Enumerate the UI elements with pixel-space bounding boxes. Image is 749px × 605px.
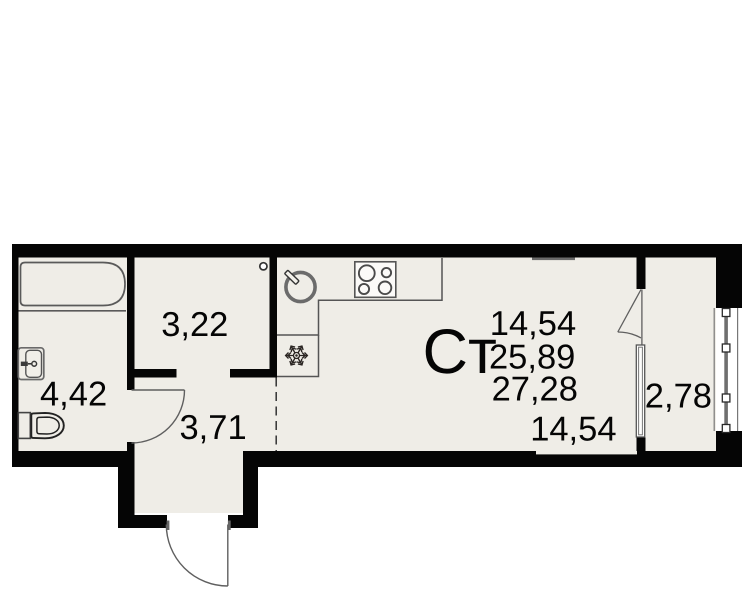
svg-text:14,54: 14,54 [530,411,616,449]
svg-text:2,78: 2,78 [645,377,712,415]
svg-text:14,54: 14,54 [490,305,576,343]
svg-text:Ст: Ст [423,317,497,387]
svg-text:3,71: 3,71 [180,409,247,447]
svg-text:4,42: 4,42 [40,376,107,414]
svg-text:3,22: 3,22 [161,306,228,344]
svg-text:27,28: 27,28 [492,371,578,409]
